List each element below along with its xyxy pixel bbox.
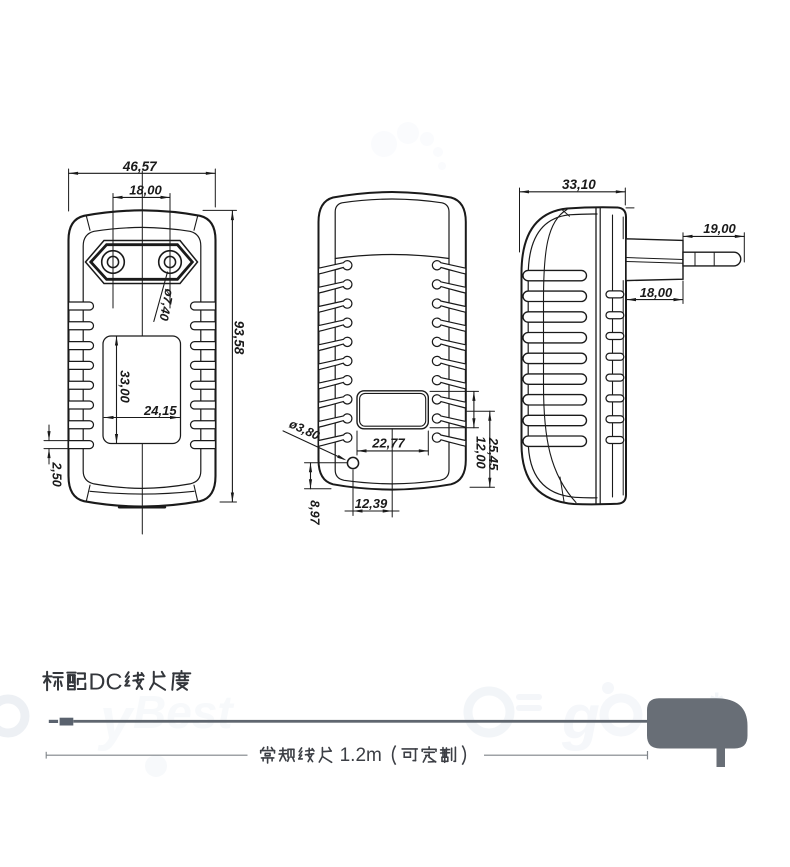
svg-text:25,45: 25,45 [486, 437, 501, 471]
svg-text:y: y [97, 687, 135, 752]
svg-text:8,97: 8,97 [308, 500, 322, 525]
svg-text:46,57: 46,57 [122, 159, 158, 174]
svg-text:2,50: 2,50 [50, 461, 64, 486]
svg-text:33,00: 33,00 [118, 370, 133, 403]
svg-text:Best: Best [133, 686, 234, 738]
svg-text:33,10: 33,10 [562, 177, 596, 192]
svg-text:DC: DC [89, 668, 123, 694]
svg-text:18,00: 18,00 [640, 285, 673, 300]
svg-text:19,00: 19,00 [703, 221, 736, 236]
svg-text:1.2m: 1.2m [340, 745, 382, 766]
svg-text:22,77: 22,77 [371, 436, 405, 451]
svg-text:18,00: 18,00 [129, 182, 162, 197]
svg-text:93,58: 93,58 [231, 321, 246, 355]
svg-text:g: g [561, 683, 600, 752]
svg-text:12,39: 12,39 [355, 496, 388, 511]
svg-text:24,15: 24,15 [143, 403, 177, 418]
